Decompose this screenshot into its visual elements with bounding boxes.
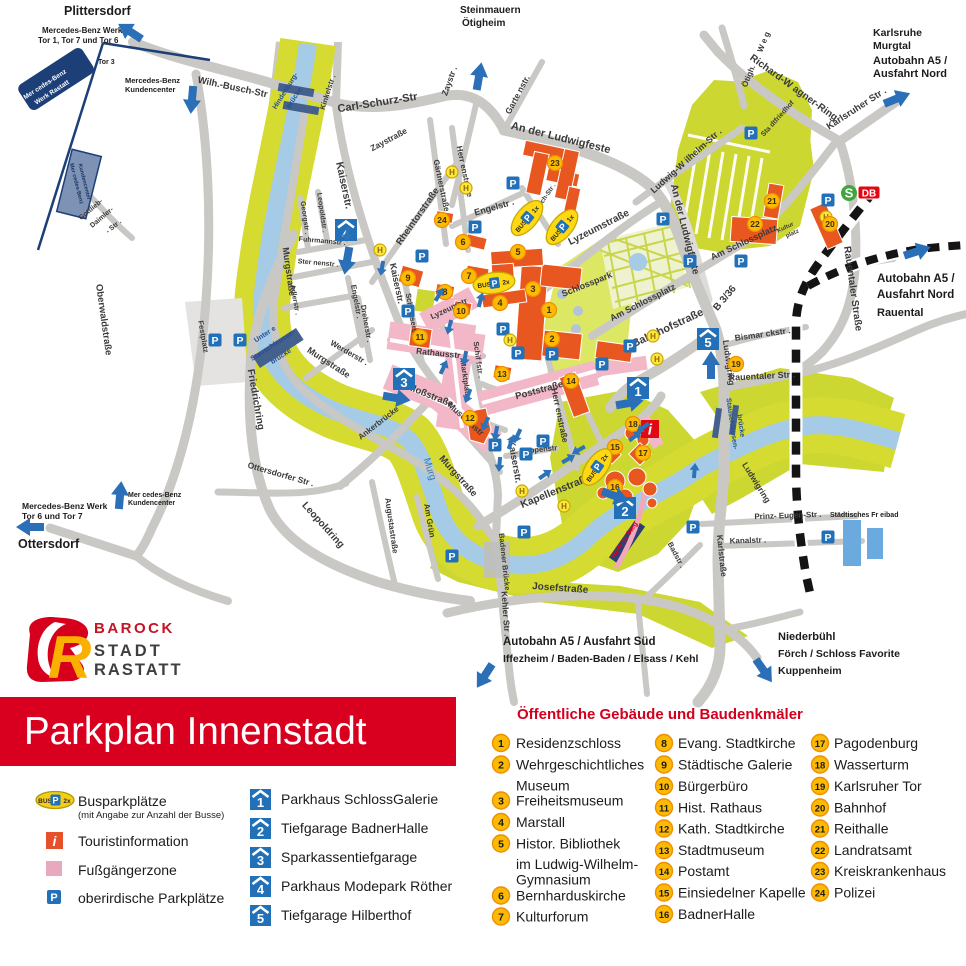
svg-text:P: P <box>52 796 58 806</box>
svg-text:Mercedes-Benz Werk: Mercedes-Benz Werk <box>22 501 108 511</box>
svg-text:18: 18 <box>628 419 638 429</box>
svg-text:Freiheitsmuseum: Freiheitsmuseum <box>516 793 623 809</box>
svg-text:5: 5 <box>704 335 711 350</box>
svg-text:Ausfahrt Nord: Ausfahrt Nord <box>877 289 954 301</box>
svg-text:H: H <box>377 246 383 255</box>
svg-text:1: 1 <box>498 738 504 750</box>
svg-text:Autobahn A5 / Ausfahrt Süd: Autobahn A5 / Ausfahrt Süd <box>503 636 655 648</box>
svg-text:Öffentliche Gebäude und Bauden: Öffentliche Gebäude und Baudenkmäler <box>517 706 803 723</box>
svg-text:P: P <box>522 449 529 461</box>
svg-text:Rauental: Rauental <box>877 307 923 319</box>
svg-text:P: P <box>689 522 696 534</box>
svg-text:2x: 2x <box>63 798 71 805</box>
svg-text:6: 6 <box>498 890 504 902</box>
svg-text:12: 12 <box>465 413 475 423</box>
svg-text:2: 2 <box>257 824 264 839</box>
svg-text:21: 21 <box>767 196 777 206</box>
svg-text:10: 10 <box>659 782 670 793</box>
svg-text:Fußgängerzone: Fußgängerzone <box>78 862 177 878</box>
svg-text:Einsiedelner Kapelle: Einsiedelner Kapelle <box>678 885 806 901</box>
svg-text:11: 11 <box>416 332 425 342</box>
svg-text:Autobahn A5 /: Autobahn A5 / <box>873 55 947 67</box>
svg-text:H: H <box>449 168 455 177</box>
svg-text:Parkhaus Modepark Röther: Parkhaus Modepark Röther <box>281 878 453 894</box>
svg-text:H: H <box>519 487 525 496</box>
svg-text:2: 2 <box>621 504 628 519</box>
svg-text:5: 5 <box>515 247 520 257</box>
svg-text:P: P <box>598 359 605 371</box>
svg-text:Stadtmuseum: Stadtmuseum <box>678 842 764 858</box>
svg-text:P: P <box>418 251 425 263</box>
svg-text:Mercedes-Benz Werk: Mercedes-Benz Werk <box>42 26 123 35</box>
svg-text:oberirdische Parkplätze: oberirdische Parkplätze <box>78 890 225 906</box>
svg-text:P: P <box>471 222 478 234</box>
svg-text:13: 13 <box>659 846 670 857</box>
svg-text:P: P <box>499 324 506 336</box>
svg-text:BadnerHalle: BadnerHalle <box>678 906 755 922</box>
svg-text:H: H <box>463 184 469 193</box>
svg-text:Städtische Galerie: Städtische Galerie <box>678 757 793 773</box>
svg-text:(mit Angabe zur Anzahl der Bus: (mit Angabe zur Anzahl der Busse) <box>78 810 224 821</box>
svg-text:Mer cedes-Benz: Mer cedes-Benz <box>128 492 182 499</box>
svg-text:2: 2 <box>498 759 504 771</box>
svg-text:3: 3 <box>257 853 264 868</box>
svg-text:Karlsruher Tor: Karlsruher Tor <box>834 778 922 794</box>
svg-text:Marstall: Marstall <box>516 814 565 830</box>
svg-text:Wehrgeschichtliches: Wehrgeschichtliches <box>516 757 644 773</box>
svg-text:Plittersdorf: Plittersdorf <box>64 4 132 18</box>
svg-text:P: P <box>659 214 666 226</box>
svg-text:24: 24 <box>815 888 826 899</box>
svg-text:20: 20 <box>815 803 826 814</box>
svg-text:Gymnasium: Gymnasium <box>516 872 591 888</box>
svg-text:Tiefgarage Hilberthof: Tiefgarage Hilberthof <box>281 907 411 923</box>
svg-text:Förch / Schloss Favorite: Förch / Schloss Favorite <box>778 648 900 660</box>
svg-text:1: 1 <box>546 305 551 315</box>
svg-text:Parkhaus SchlossGalerie: Parkhaus SchlossGalerie <box>281 791 438 807</box>
svg-text:R: R <box>48 624 91 691</box>
svg-text:P: P <box>50 892 57 904</box>
svg-text:P: P <box>737 256 744 268</box>
svg-text:5: 5 <box>498 838 504 850</box>
svg-text:Mercedes-Benz: Mercedes-Benz <box>125 76 180 85</box>
svg-text:17: 17 <box>638 448 648 458</box>
svg-text:Ausfahrt Nord: Ausfahrt Nord <box>873 68 947 80</box>
svg-text:Iffezheim / Baden-Baden / Elsa: Iffezheim / Baden-Baden / Elsass / Kehl <box>503 653 699 665</box>
svg-text:Bernharduskirche: Bernharduskirche <box>516 888 626 904</box>
svg-text:19: 19 <box>731 359 741 369</box>
svg-text:4: 4 <box>497 298 502 308</box>
svg-text:Busparkplätze: Busparkplätze <box>78 793 167 809</box>
svg-text:P: P <box>211 335 218 347</box>
svg-text:22: 22 <box>815 846 826 857</box>
svg-text:13: 13 <box>497 369 507 379</box>
svg-text:3: 3 <box>530 284 535 294</box>
svg-text:Parkplan Innenstadt: Parkplan Innenstadt <box>24 710 367 753</box>
svg-text:2: 2 <box>549 334 554 344</box>
svg-text:Ötigheim: Ötigheim <box>462 16 505 29</box>
svg-text:P: P <box>404 306 411 318</box>
svg-text:Postamt: Postamt <box>678 863 729 879</box>
svg-text:Kreiskrankenhaus: Kreiskrankenhaus <box>834 863 946 879</box>
svg-text:P: P <box>686 256 693 268</box>
svg-text:3: 3 <box>498 795 504 807</box>
svg-text:H: H <box>507 336 513 345</box>
svg-text:BUS: BUS <box>38 798 52 805</box>
svg-text:8: 8 <box>661 738 667 750</box>
svg-text:Städtisches Fr eibad: Städtisches Fr eibad <box>830 512 898 519</box>
svg-text:Touristinformation: Touristinformation <box>78 833 189 849</box>
svg-text:Tor 6 und Tor 7: Tor 6 und Tor 7 <box>22 511 83 521</box>
svg-text:Kanalstr .: Kanalstr . <box>730 535 767 545</box>
svg-text:Tor 1, Tor 7 und Tor 6: Tor 1, Tor 7 und Tor 6 <box>38 36 119 45</box>
svg-text:im Ludwig-Wilhelm-: im Ludwig-Wilhelm- <box>516 856 638 872</box>
svg-text:16: 16 <box>659 910 670 921</box>
svg-text:H: H <box>561 502 567 511</box>
svg-text:Bahnhof: Bahnhof <box>834 800 886 816</box>
svg-text:18: 18 <box>815 760 826 771</box>
svg-text:S: S <box>845 186 854 201</box>
svg-text:Bürgerbüro: Bürgerbüro <box>678 778 748 794</box>
svg-text:Kundencenter: Kundencenter <box>125 85 176 94</box>
svg-text:4: 4 <box>257 882 265 897</box>
svg-text:P: P <box>539 436 546 448</box>
svg-text:7: 7 <box>466 271 471 281</box>
svg-text:Museum: Museum <box>516 778 570 794</box>
svg-text:3: 3 <box>400 375 407 390</box>
svg-text:RASTATT: RASTATT <box>94 661 183 679</box>
svg-text:P: P <box>548 349 555 361</box>
svg-text:STADT: STADT <box>94 642 163 660</box>
svg-text:P: P <box>747 128 754 140</box>
svg-text:Reithalle: Reithalle <box>834 821 889 837</box>
svg-text:Pagodenburg: Pagodenburg <box>834 735 918 751</box>
svg-text:P: P <box>448 551 455 563</box>
svg-text:Karlsruhe: Karlsruhe <box>873 27 922 39</box>
svg-text:P: P <box>491 440 498 452</box>
svg-text:9: 9 <box>661 759 667 771</box>
svg-text:20: 20 <box>825 219 835 229</box>
svg-text:Steinmauern: Steinmauern <box>460 5 521 16</box>
svg-text:Murgtal: Murgtal <box>873 40 911 52</box>
svg-text:1: 1 <box>257 795 264 810</box>
svg-text:Tor 3: Tor 3 <box>98 59 115 66</box>
svg-text:Evang. Stadtkirche: Evang. Stadtkirche <box>678 735 796 751</box>
svg-text:P: P <box>514 348 521 360</box>
svg-text:23: 23 <box>815 867 826 878</box>
svg-text:15: 15 <box>610 442 620 452</box>
svg-text:Histor. Bibliothek: Histor. Bibliothek <box>516 836 621 852</box>
svg-text:24: 24 <box>437 215 447 225</box>
svg-text:19: 19 <box>815 782 826 793</box>
svg-text:15: 15 <box>659 888 670 899</box>
svg-text:P: P <box>236 335 243 347</box>
svg-text:1: 1 <box>634 384 641 399</box>
svg-text:P: P <box>520 527 527 539</box>
svg-text:Ottersdorf: Ottersdorf <box>18 537 80 551</box>
svg-text:2x: 2x <box>502 279 511 287</box>
svg-text:Tiefgarage BadnerHalle: Tiefgarage BadnerHalle <box>281 820 429 836</box>
svg-text:Niederbühl: Niederbühl <box>778 631 835 643</box>
svg-text:Kundencenter: Kundencenter <box>128 500 175 507</box>
svg-text:23: 23 <box>550 158 560 168</box>
svg-text:14: 14 <box>659 867 670 878</box>
svg-text:7: 7 <box>498 911 504 923</box>
svg-text:Kath. Stadtkirche: Kath. Stadtkirche <box>678 821 785 837</box>
svg-text:9: 9 <box>405 273 410 283</box>
svg-text:Sparkassentiefgarage: Sparkassentiefgarage <box>281 849 417 865</box>
svg-text:6: 6 <box>460 237 465 247</box>
svg-text:Hist. Rathaus: Hist. Rathaus <box>678 800 762 816</box>
svg-text:21: 21 <box>815 824 826 835</box>
svg-text:Autobahn A5 /: Autobahn A5 / <box>877 273 955 285</box>
svg-text:22: 22 <box>750 219 760 229</box>
svg-text:Residenzschloss: Residenzschloss <box>516 735 621 751</box>
svg-text:Kulturforum: Kulturforum <box>516 909 588 925</box>
svg-text:P: P <box>509 178 516 190</box>
svg-text:H: H <box>654 355 660 364</box>
svg-text:4: 4 <box>498 817 504 829</box>
svg-text:12: 12 <box>659 824 670 835</box>
svg-text:Wasserturm: Wasserturm <box>834 757 909 773</box>
svg-text:10: 10 <box>456 306 466 316</box>
svg-text:5: 5 <box>257 911 264 926</box>
svg-text:P: P <box>824 195 831 207</box>
svg-text:DB: DB <box>862 189 876 200</box>
svg-text:14: 14 <box>566 376 576 386</box>
svg-text:H: H <box>650 332 656 341</box>
svg-text:11: 11 <box>659 803 670 814</box>
svg-text:BAROCK: BAROCK <box>94 620 175 637</box>
svg-text:Polizei: Polizei <box>834 885 875 901</box>
svg-text:P: P <box>626 341 633 353</box>
svg-text:Landratsamt: Landratsamt <box>834 842 912 858</box>
svg-text:Kuppenheim: Kuppenheim <box>778 665 842 677</box>
svg-text:P: P <box>824 532 831 544</box>
svg-text:17: 17 <box>815 739 826 750</box>
